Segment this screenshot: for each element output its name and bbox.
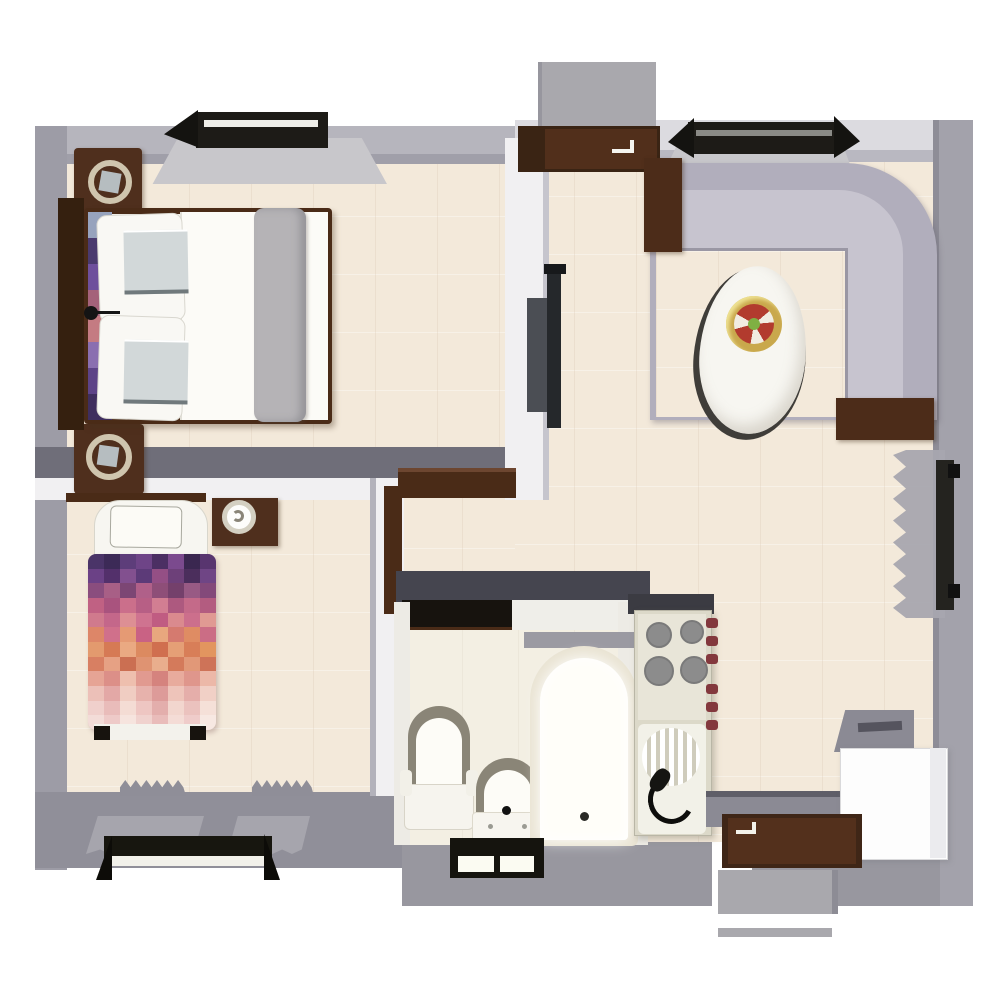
pixel-cell bbox=[104, 642, 120, 657]
sink-faucet-icon bbox=[502, 806, 511, 815]
sink-tap-right bbox=[522, 824, 527, 829]
pixel-cell bbox=[120, 583, 136, 598]
knob-6 bbox=[706, 720, 718, 730]
decor-bowl-center bbox=[748, 318, 760, 330]
bed2-foot-right bbox=[190, 726, 206, 740]
toilet-tank bbox=[404, 784, 474, 830]
pixel-cell bbox=[200, 657, 216, 672]
knob-5 bbox=[706, 702, 718, 712]
bedroom2-lamp-curl bbox=[232, 510, 244, 522]
pixel-cell bbox=[136, 627, 152, 642]
entry-bottom-door-handle-icon2 bbox=[752, 822, 756, 832]
pixel-cell bbox=[152, 686, 168, 701]
pixel-cell bbox=[168, 627, 184, 642]
pixel-cell bbox=[152, 598, 168, 613]
pixel-cell bbox=[88, 686, 104, 701]
pixel-cell bbox=[200, 686, 216, 701]
entry-bottom-porch bbox=[718, 870, 838, 914]
knob-4 bbox=[706, 684, 718, 694]
pixel-cell bbox=[200, 701, 216, 716]
entry-top-door-handle-icon2 bbox=[630, 140, 634, 150]
pixel-cell bbox=[120, 569, 136, 584]
pixel-cell bbox=[120, 554, 136, 569]
pixel-cell bbox=[200, 583, 216, 598]
pixel-cell bbox=[136, 701, 152, 716]
pixel-cell bbox=[184, 701, 200, 716]
toilet-arm-left bbox=[400, 770, 412, 796]
sink-tap-left bbox=[488, 824, 493, 829]
burner-1 bbox=[646, 622, 672, 648]
pixel-cell bbox=[104, 701, 120, 716]
pixel-cell bbox=[136, 657, 152, 672]
pixel-cell bbox=[88, 671, 104, 686]
pixel-cell bbox=[88, 583, 104, 598]
pixel-cell bbox=[88, 554, 104, 569]
pixel-cell bbox=[104, 613, 120, 628]
pixel-cell bbox=[168, 613, 184, 628]
pixel-cell bbox=[152, 627, 168, 642]
pixel-cell bbox=[200, 598, 216, 613]
floor-plan-canvas bbox=[0, 0, 1000, 1000]
pixel-cell bbox=[168, 642, 184, 657]
pixel-cell bbox=[168, 598, 184, 613]
pixel-cell bbox=[184, 598, 200, 613]
pixel-cell bbox=[136, 686, 152, 701]
pixel-cell bbox=[136, 598, 152, 613]
sofa-end-table-left bbox=[644, 158, 682, 252]
pixel-cell bbox=[168, 671, 184, 686]
pixel-cell bbox=[152, 657, 168, 672]
pixel-cell bbox=[104, 598, 120, 613]
pixel-cell bbox=[168, 554, 184, 569]
pixel-cell bbox=[184, 554, 200, 569]
bed2-window-sill bbox=[112, 856, 264, 866]
pixel-cell bbox=[168, 583, 184, 598]
pixel-cell bbox=[120, 657, 136, 672]
pixel-cell bbox=[88, 613, 104, 628]
bed2-pillow bbox=[110, 505, 183, 548]
pixel-cell bbox=[200, 642, 216, 657]
master-bed-cushion-top bbox=[123, 229, 188, 294]
entry-door-mat bbox=[718, 928, 832, 937]
pixel-cell bbox=[184, 569, 200, 584]
pixel-cell bbox=[152, 613, 168, 628]
pixel-cell bbox=[104, 686, 120, 701]
master-window-frame bbox=[196, 112, 328, 148]
pixel-cell bbox=[184, 671, 200, 686]
pixel-cell bbox=[136, 613, 152, 628]
bed2-pixel-duvet bbox=[88, 554, 216, 730]
bathroom-window-pane-right bbox=[500, 856, 534, 872]
appliance-side-shade bbox=[930, 748, 946, 858]
pixel-cell bbox=[184, 627, 200, 642]
pixel-cell bbox=[104, 554, 120, 569]
lamp-top-glass bbox=[98, 170, 121, 193]
pixel-cell bbox=[104, 583, 120, 598]
knob-2 bbox=[706, 636, 718, 646]
pixel-cell bbox=[152, 583, 168, 598]
pixel-cell bbox=[168, 569, 184, 584]
pixel-cell bbox=[136, 583, 152, 598]
pixel-cell bbox=[136, 569, 152, 584]
nook-door-lintel bbox=[398, 468, 516, 498]
bathtub-drain-icon bbox=[580, 812, 589, 821]
pixel-cell bbox=[136, 554, 152, 569]
wall-sconce-arm bbox=[96, 311, 120, 314]
pixel-cell bbox=[88, 642, 104, 657]
burner-4 bbox=[680, 656, 708, 684]
pixel-cell bbox=[88, 627, 104, 642]
pixel-cell bbox=[200, 627, 216, 642]
pixel-cell bbox=[120, 627, 136, 642]
pixel-cell bbox=[184, 686, 200, 701]
pixel-cell bbox=[120, 598, 136, 613]
pixel-cell bbox=[184, 613, 200, 628]
pixel-cell bbox=[88, 569, 104, 584]
entry-bottom-door-face bbox=[728, 818, 856, 864]
pixel-cell bbox=[88, 598, 104, 613]
pixel-cell bbox=[200, 613, 216, 628]
master-bed-runner bbox=[254, 208, 306, 422]
pixel-cell bbox=[104, 657, 120, 672]
master-bed-headboard bbox=[58, 198, 84, 430]
bathroom-window-pane-left bbox=[458, 856, 494, 872]
pixel-cell bbox=[104, 671, 120, 686]
pixel-cell bbox=[120, 701, 136, 716]
pixel-cell bbox=[200, 554, 216, 569]
living-window-glass bbox=[696, 130, 832, 136]
toilet-bowl bbox=[416, 718, 462, 788]
master-bed-cushion-bottom bbox=[123, 339, 188, 404]
master-window-glass bbox=[204, 120, 318, 127]
right-window-handle-bottom bbox=[948, 584, 960, 598]
knob-1 bbox=[706, 618, 718, 628]
pixel-cell bbox=[120, 642, 136, 657]
knob-3 bbox=[706, 654, 718, 664]
tv-top-cap bbox=[544, 264, 566, 274]
pixel-cell bbox=[200, 569, 216, 584]
pixel-cell bbox=[184, 583, 200, 598]
pixel-cell bbox=[152, 642, 168, 657]
hall-nook-floor bbox=[400, 490, 515, 578]
living-window-frame bbox=[688, 122, 840, 154]
pixel-cell bbox=[136, 642, 152, 657]
pixel-cell bbox=[152, 569, 168, 584]
tv-screen bbox=[547, 270, 561, 428]
pixel-cell bbox=[168, 686, 184, 701]
pixel-cell bbox=[120, 613, 136, 628]
sofa-end-table-right bbox=[836, 398, 934, 440]
burner-2 bbox=[680, 620, 704, 644]
pixel-cell bbox=[104, 627, 120, 642]
right-window-handle-top bbox=[948, 464, 960, 478]
pixel-cell bbox=[168, 701, 184, 716]
pixel-cell bbox=[152, 554, 168, 569]
pixel-cell bbox=[120, 671, 136, 686]
pixel-cell bbox=[88, 701, 104, 716]
pixel-cell bbox=[184, 642, 200, 657]
pixel-cell bbox=[152, 701, 168, 716]
pixel-cell bbox=[168, 657, 184, 672]
pixel-cell bbox=[88, 657, 104, 672]
entry-top-door-leaf bbox=[545, 129, 657, 169]
pixel-cell bbox=[184, 657, 200, 672]
bed2-foot-left bbox=[94, 726, 110, 740]
lamp-bottom-glass bbox=[97, 445, 120, 468]
pixel-cell bbox=[152, 671, 168, 686]
pixel-cell bbox=[136, 671, 152, 686]
bedroom2-right-wall-edge bbox=[370, 478, 376, 796]
pixel-cell bbox=[200, 671, 216, 686]
pixel-cell bbox=[104, 569, 120, 584]
pixel-cell bbox=[120, 686, 136, 701]
burner-3 bbox=[644, 656, 674, 686]
